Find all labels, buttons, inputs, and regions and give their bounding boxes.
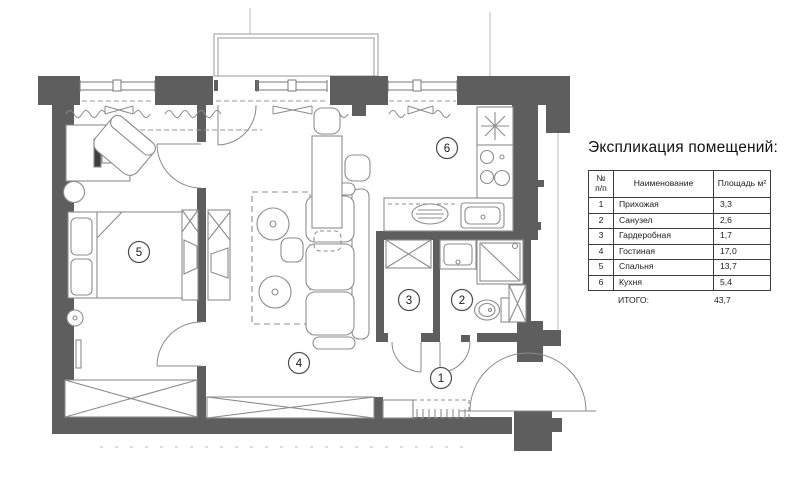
pouf-1 (257, 208, 289, 240)
table-row: 6 Кухня 5,4 (589, 275, 771, 291)
ceiling-light-symbol (477, 107, 513, 145)
floor-plan-page: 1 2 3 4 5 6 Эксплик (0, 0, 800, 482)
toilet (475, 298, 511, 322)
room-label-2: 2 (452, 290, 473, 311)
drain-tray (412, 204, 448, 224)
tv-unit-bedroom (182, 210, 198, 300)
shower (477, 240, 523, 284)
table-row: 1 Прихожая 3,3 (589, 198, 771, 214)
header-area: Площадь м² (714, 171, 771, 198)
legend-title: Экспликация помещений: (588, 139, 792, 157)
wardrobe-living (207, 397, 374, 418)
radiators (66, 106, 450, 118)
room-label-5: 5 (129, 242, 150, 263)
svg-text:2: 2 (459, 295, 465, 307)
header-num: № п/п (589, 171, 614, 198)
svg-text:5: 5 (136, 247, 142, 259)
floor-lamp (67, 310, 83, 326)
kitchen-sink (461, 203, 504, 228)
cabinet-x (386, 240, 431, 268)
shoe-bench (383, 400, 469, 418)
svg-text:4: 4 (296, 358, 303, 370)
total-label: ИТОГО: (618, 295, 713, 305)
stool (64, 182, 85, 203)
washing-machine (509, 285, 526, 322)
bedroom-door-lower (157, 322, 201, 366)
header-name: Наименование (614, 171, 714, 198)
bathroom-sink (440, 240, 476, 269)
bedroom-door-upper (157, 144, 201, 188)
total-row: ИТОГО: 43,7 (588, 295, 792, 305)
svg-text:3: 3 (406, 295, 412, 307)
room-label-3: 3 (399, 290, 420, 311)
svg-text:6: 6 (444, 143, 450, 155)
windows (80, 80, 457, 130)
pouf-2 (259, 276, 291, 308)
wall-radiator (76, 340, 81, 368)
wardrobe-bedroom (65, 380, 197, 417)
svg-text:1: 1 (438, 373, 444, 385)
table-row: 5 Спальня 13,7 (589, 260, 771, 276)
explication-table: № п/п Наименование Площадь м² 1 Прихожая… (588, 170, 771, 291)
total-value: 43,7 (714, 295, 731, 305)
balcony-door (218, 105, 256, 145)
balcony (214, 34, 378, 76)
room-label-6: 6 (437, 138, 458, 159)
room-label-1: 1 (431, 368, 452, 389)
room-label-4: 4 (289, 353, 310, 374)
table-row: 4 Гостиная 17,0 (589, 244, 771, 260)
wardrobe-room-door (392, 342, 421, 372)
table-row: 2 Санузел 2,6 (589, 213, 771, 229)
coffee-table (281, 238, 303, 262)
table-row: 3 Гардеробная 1,7 (589, 229, 771, 245)
legend: Экспликация помещений: № п/п Наименовани… (562, 139, 792, 305)
tv-unit-living (208, 210, 230, 300)
